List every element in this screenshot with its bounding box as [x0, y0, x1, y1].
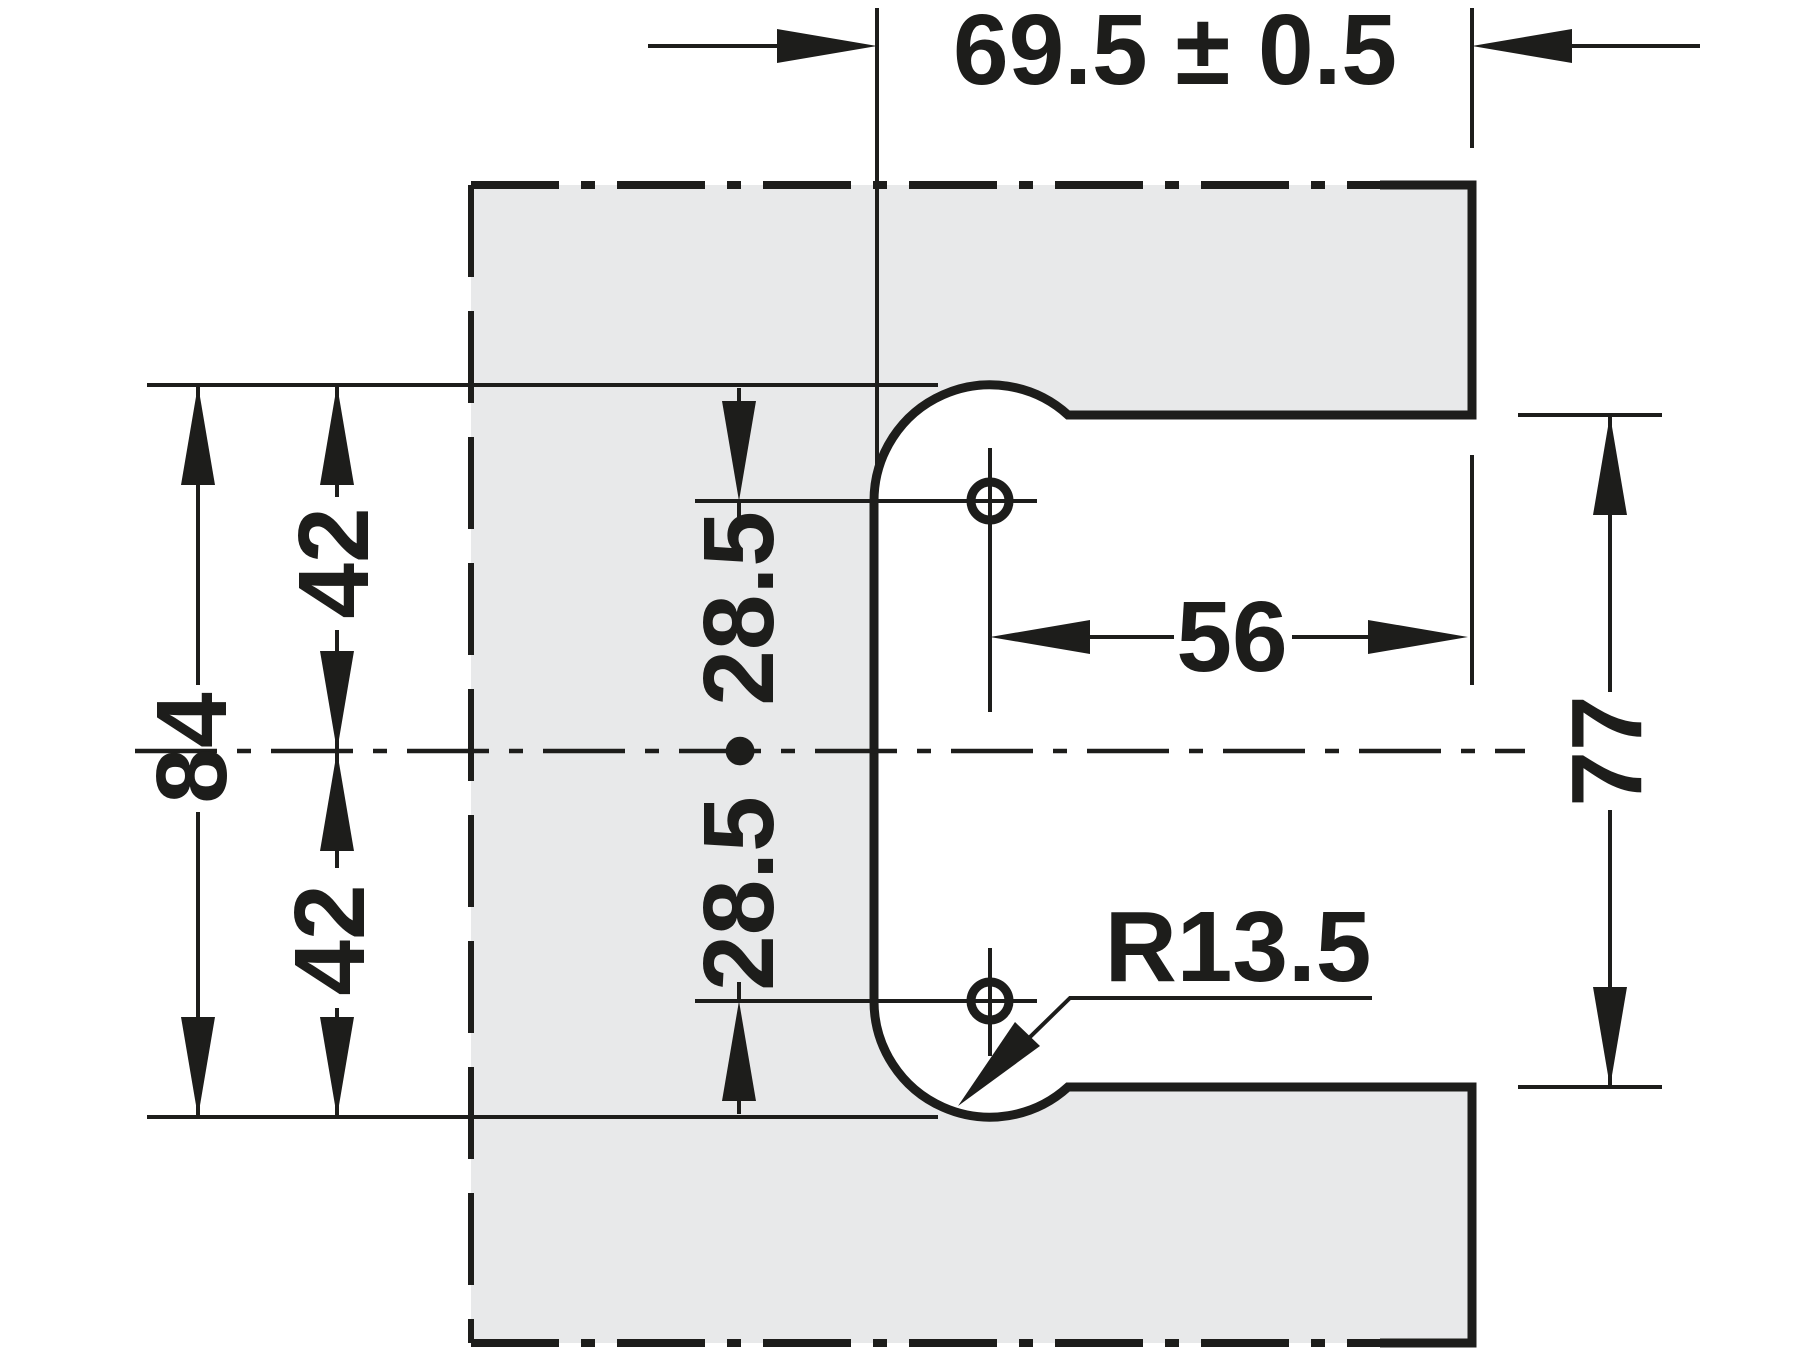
dim-opening-height-label: 77 — [1557, 695, 1657, 806]
technical-drawing-canvas: 69.5 ± 0.5 84 42 42 28.5 • 28.5 56 77 R1… — [0, 0, 1800, 1350]
dim-lower-offset-label: 42 — [280, 884, 380, 995]
dim-width-label: 69.5 ± 0.5 — [953, 0, 1397, 100]
dim-hole-to-edge-label: 56 — [1176, 587, 1287, 687]
drawing-geometry — [0, 0, 1800, 1350]
arrow-77-top — [1593, 415, 1627, 515]
leader-r13-line — [990, 998, 1372, 1076]
arrow-42-upper-bottom — [320, 651, 354, 751]
arrow-84-top — [181, 385, 215, 485]
arrow-77-bottom — [1593, 987, 1627, 1087]
arrow-42-lower-bottom — [320, 1017, 354, 1117]
dim-corner-radius-label: R13.5 — [1105, 897, 1372, 997]
arrow-56-left — [990, 620, 1090, 654]
dim-hole-pair-label: 28.5 • 28.5 — [689, 511, 789, 991]
arrow-width-left — [777, 29, 877, 63]
arrow-42-lower-top — [320, 751, 354, 851]
arrow-42-upper-top — [320, 385, 354, 485]
panel-fill — [471, 185, 1472, 1343]
arrow-56-right — [1368, 620, 1468, 654]
dim-total-height-label: 84 — [142, 692, 242, 803]
arrow-84-bottom — [181, 1017, 215, 1117]
arrow-leader-r13 — [958, 1022, 1040, 1106]
arrow-width-right — [1472, 29, 1572, 63]
dim-upper-offset-label: 42 — [284, 507, 384, 618]
